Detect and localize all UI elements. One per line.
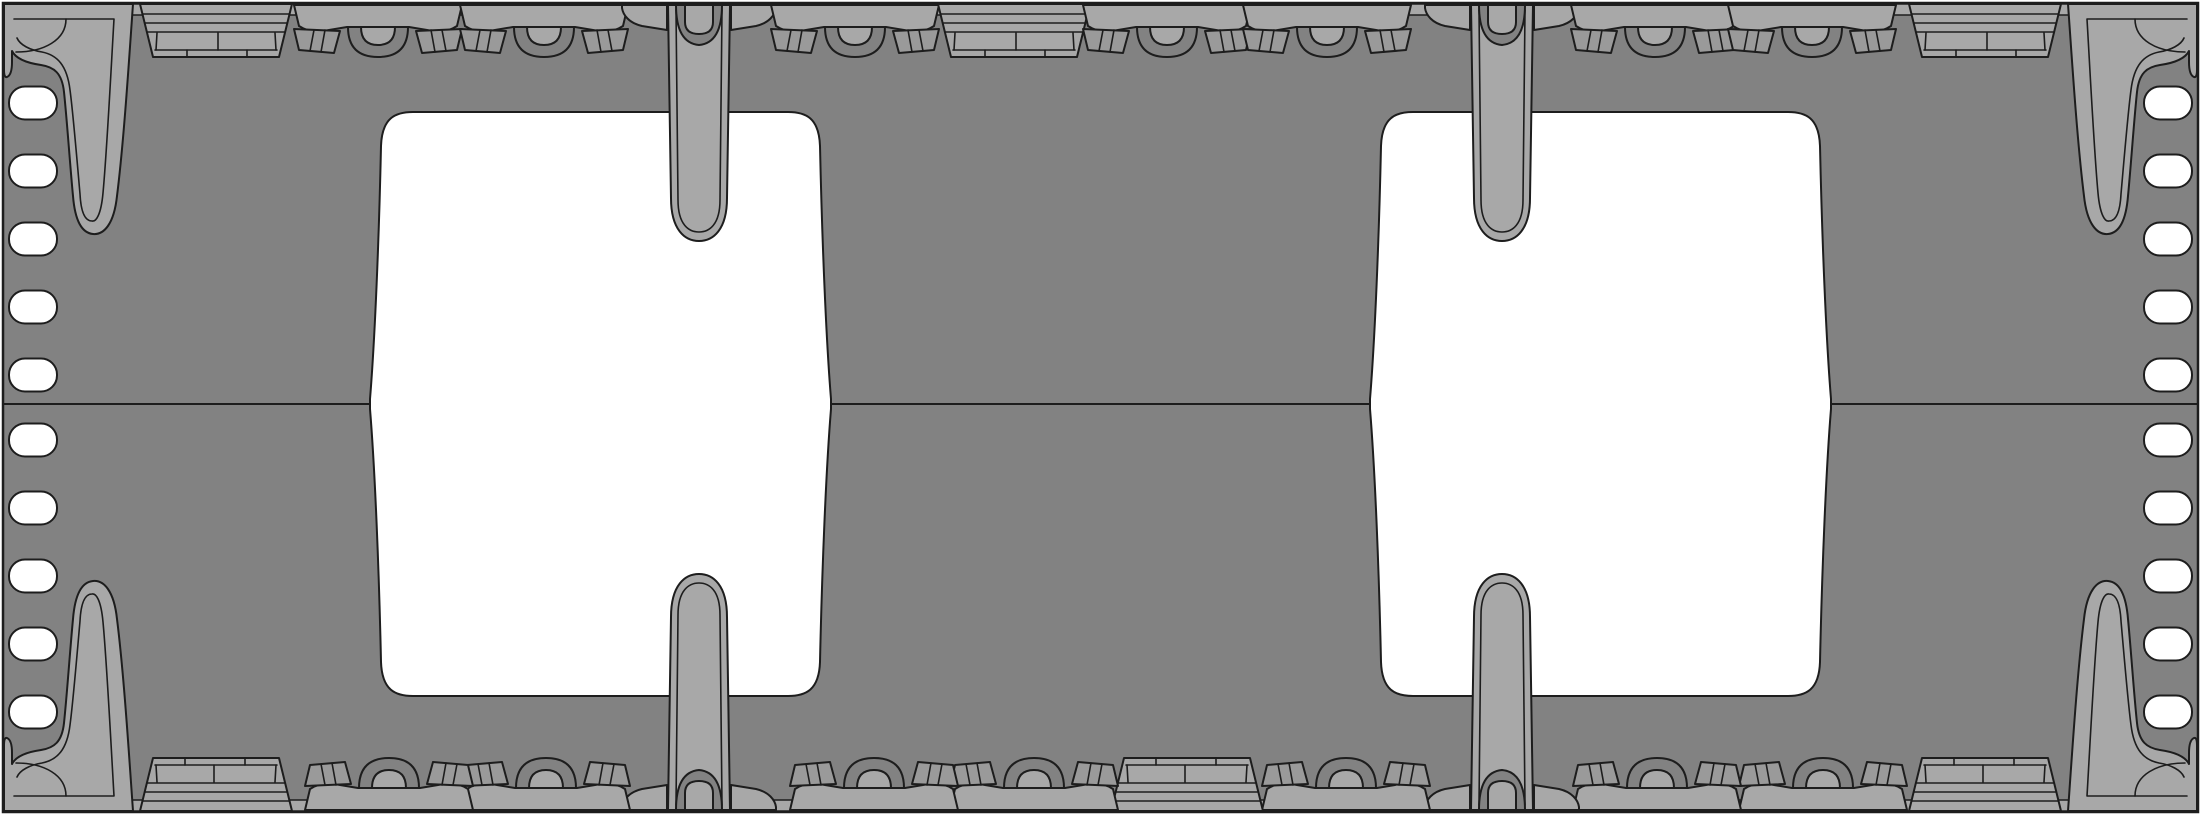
mounting-slot	[9, 291, 57, 324]
cad-drawing	[0, 0, 2201, 815]
hinge-knuckle	[1150, 27, 1184, 45]
mounting-slot	[9, 87, 57, 120]
clip-block-detail-line	[2044, 33, 2045, 50]
splice-cutout-right	[1370, 112, 1831, 696]
hinge-tab-cluster	[771, 5, 939, 57]
hinge-tab-cluster	[294, 5, 462, 57]
tab-flank-left	[771, 29, 817, 53]
clip-block-detail-line	[156, 33, 157, 50]
tab-flank-left	[294, 29, 340, 53]
clip-block-detail-line	[1073, 33, 1074, 50]
tab-flank-right	[1850, 29, 1896, 53]
hinge-knuckle	[361, 27, 395, 45]
tab-flank-left	[1243, 29, 1289, 53]
clip-block-detail-line	[1925, 33, 1926, 50]
clip-block	[140, 4, 292, 57]
tab-flank-right	[582, 29, 628, 53]
hinge-knuckle	[1310, 27, 1344, 45]
hinge-tab-cluster	[1083, 5, 1251, 57]
mounting-slot	[9, 359, 57, 392]
mounting-slot	[9, 560, 57, 593]
clip-block-detail-line	[954, 33, 955, 50]
hinge-knuckle	[527, 27, 561, 45]
hinge-tab-cluster	[460, 5, 628, 57]
mounting-slot	[9, 424, 57, 457]
tab-flank-left	[1083, 29, 1129, 53]
mounting-slot	[9, 696, 57, 729]
hinge-tab-cluster	[1728, 5, 1896, 57]
mounting-slot	[9, 628, 57, 661]
hinge-knuckle	[838, 27, 872, 45]
pin-slot	[685, 5, 713, 34]
mounting-slot	[9, 223, 57, 256]
clip-block-body	[938, 4, 1090, 57]
clip-block	[938, 4, 1090, 57]
plate-body	[3, 3, 2198, 812]
tab-flank-right	[1365, 29, 1411, 53]
pin-slot	[1488, 5, 1516, 34]
hinge-tab-cluster	[1571, 5, 1739, 57]
mounting-slot	[9, 492, 57, 525]
tab-flank-left	[1571, 29, 1617, 53]
hinge-knuckle	[1795, 27, 1829, 45]
splice-cutout-left	[370, 112, 831, 696]
mounting-slot	[9, 155, 57, 188]
clip-block-body	[140, 4, 292, 57]
hinge-tab-cluster	[1243, 5, 1411, 57]
tab-flank-right	[893, 29, 939, 53]
hinge-knuckle	[1638, 27, 1672, 45]
tab-flank-right	[416, 29, 462, 53]
clip-block	[1909, 4, 2061, 57]
tab-flank-left	[1728, 29, 1774, 53]
tab-flank-left	[460, 29, 506, 53]
clip-block-body	[1909, 4, 2061, 57]
drawing-canvas	[0, 0, 2201, 815]
clip-block-detail-line	[275, 33, 276, 50]
